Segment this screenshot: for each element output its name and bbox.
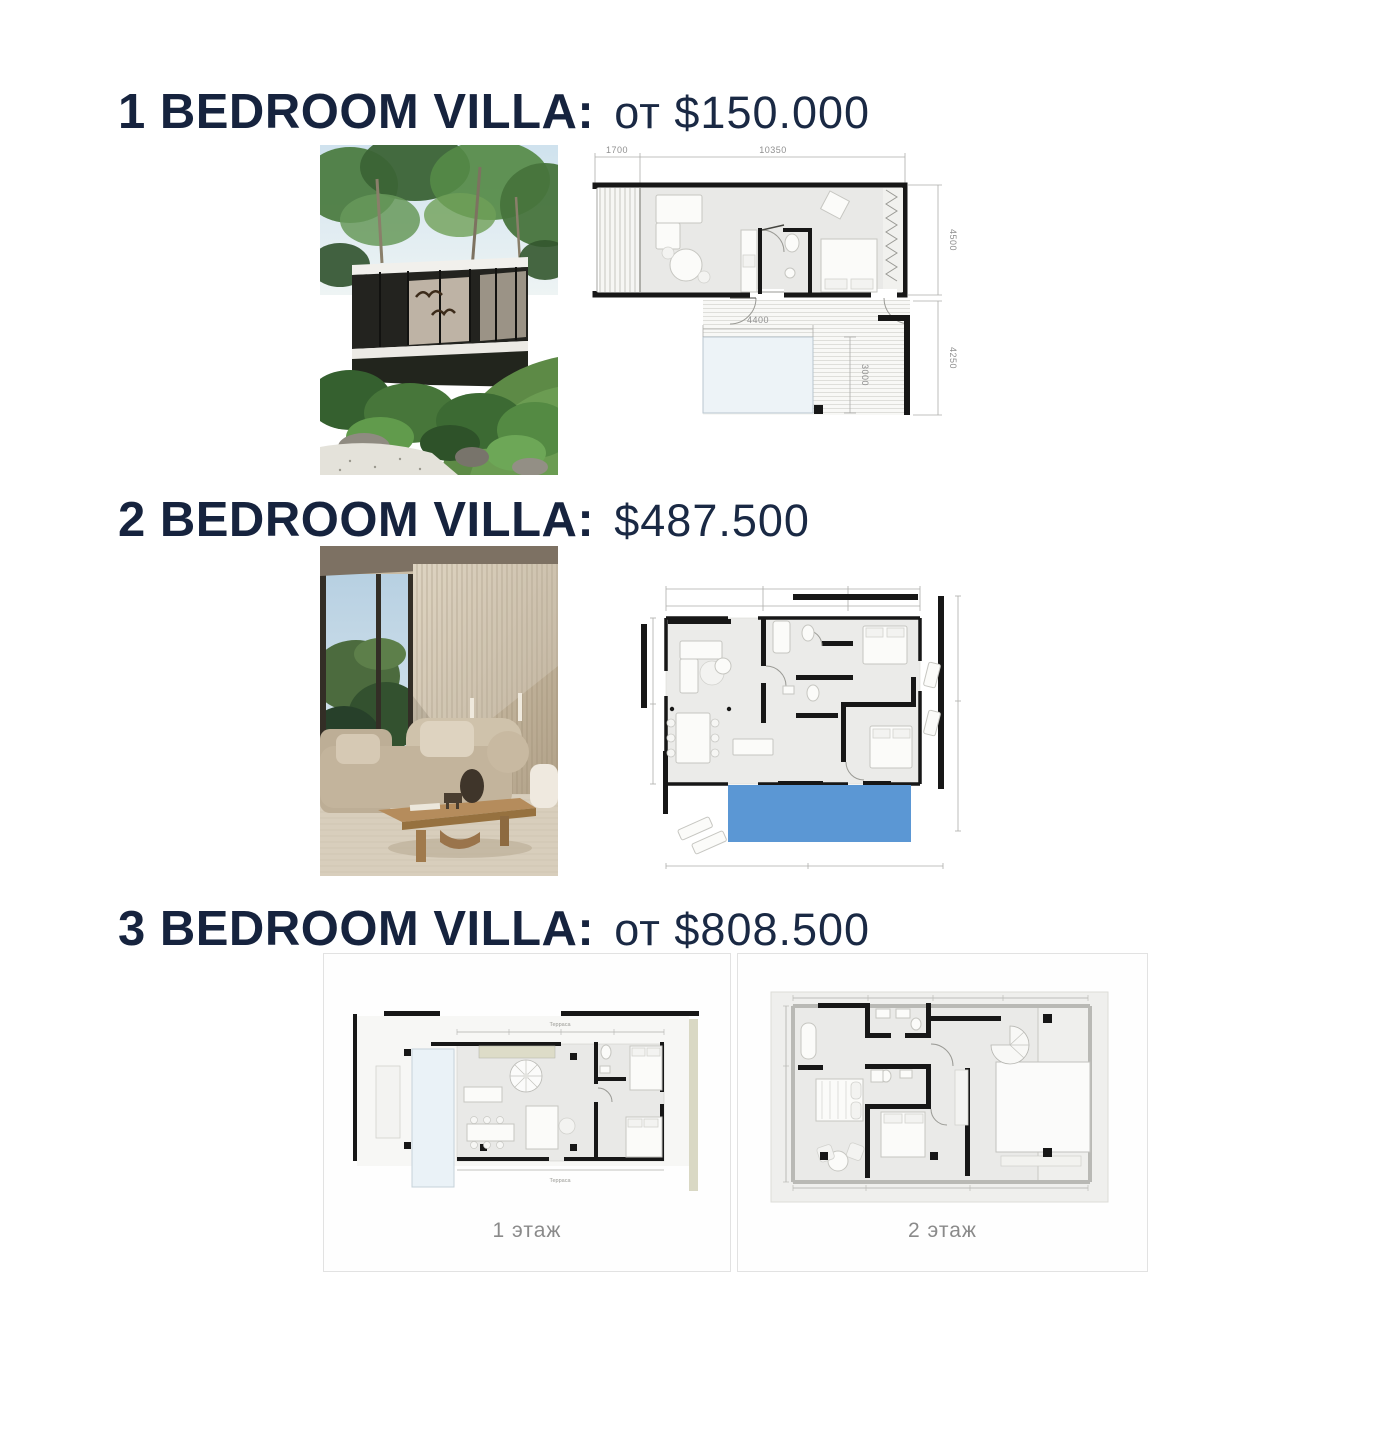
floor2-label: 2 этаж <box>738 1219 1147 1243</box>
dim-pool-depth: 3000 <box>860 364 870 386</box>
villa-pricing-page: 1 BEDROOM VILLA: от $150.000 <box>0 0 1389 1429</box>
villa-building <box>352 257 528 387</box>
terrace-label-top: Терраса <box>549 1022 571 1028</box>
villa-1br-exterior-photo <box>320 145 558 475</box>
villa-3br-heading: 3 BEDROOM VILLA: от $808.500 <box>118 901 870 957</box>
dim-terrace-width: 1700 <box>606 145 628 155</box>
pool-1br <box>703 337 813 413</box>
floor-plan-3br-level2 <box>738 954 1147 1204</box>
villa-3br-price: от $808.500 <box>614 904 870 956</box>
dim-building-width: 10350 <box>759 145 787 155</box>
floor-plan-2br <box>608 571 998 883</box>
sofa <box>320 718 529 813</box>
dim-patio-depth: 4250 <box>948 347 958 369</box>
pool-3br <box>404 1049 454 1187</box>
terrace-label-bottom: Терраса <box>549 1178 571 1184</box>
floor-plan-1br: 1700 10350 <box>578 143 1010 443</box>
villa-1br-price: от $150.000 <box>614 87 870 139</box>
villa-3br-floor2-card: 2 этаж <box>737 953 1148 1272</box>
vase <box>460 769 484 803</box>
floor-plan-3br-level1: Терраса Терраса <box>324 954 730 1204</box>
floor1-label: 1 этаж <box>324 1219 730 1243</box>
spiral-staircase <box>510 1060 542 1092</box>
patio <box>703 298 910 415</box>
villa-2br-price: $487.500 <box>614 495 810 547</box>
villa-3br-floor1-card: Терраса Терраса <box>323 953 731 1272</box>
dimension-right-top: 4500 <box>908 185 958 295</box>
villa-2br-title: 2 BEDROOM VILLA: <box>118 492 594 548</box>
side-chair <box>530 764 558 808</box>
villa-3br-title: 3 BEDROOM VILLA: <box>118 901 594 957</box>
villa-2br-interior-photo <box>320 546 558 876</box>
villa-2br-heading: 2 BEDROOM VILLA: $487.500 <box>118 492 810 548</box>
dimension-right-bottom: 4250 <box>913 301 958 415</box>
villa-1br-title: 1 BEDROOM VILLA: <box>118 84 594 140</box>
dim-pool-width: 4400 <box>747 315 769 325</box>
jungle-villa-illustration <box>320 145 558 475</box>
villa-1br-floor-plan: 1700 10350 <box>578 143 1010 443</box>
sun-loungers <box>677 817 727 855</box>
interior-illustration <box>320 546 558 876</box>
dim-building-depth: 4500 <box>948 229 958 251</box>
dimension-top: 1700 10350 <box>595 145 905 183</box>
villa-2br-floor-plan <box>608 571 998 883</box>
pool-2br <box>728 785 911 842</box>
villa-1br-heading: 1 BEDROOM VILLA: от $150.000 <box>118 84 870 140</box>
outdoor-lounge <box>376 1066 400 1138</box>
